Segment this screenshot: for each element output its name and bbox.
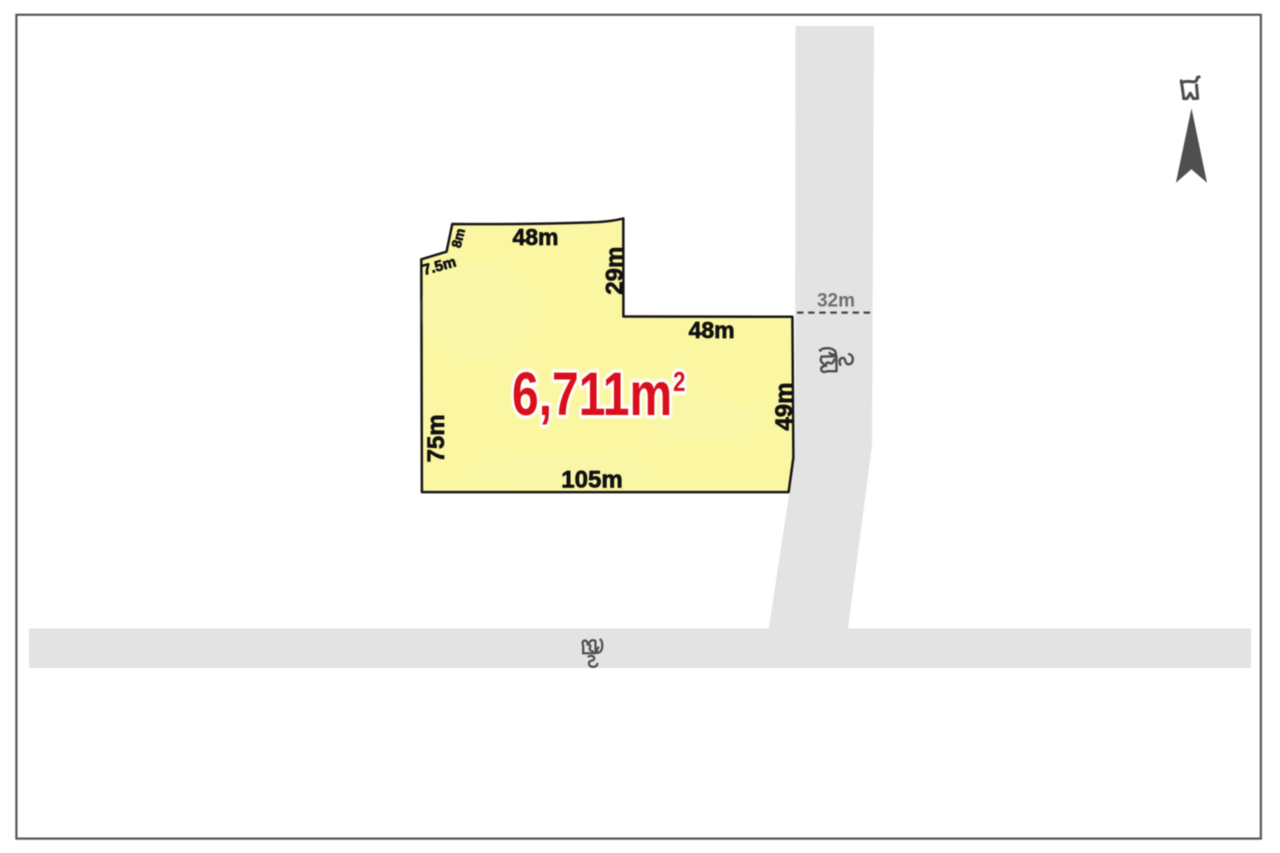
- svg-text:29m: 29m: [601, 247, 628, 295]
- svg-text:48m: 48m: [689, 317, 735, 343]
- svg-text:6,711m2: 6,711m2: [512, 359, 685, 428]
- svg-text:32m: 32m: [817, 291, 855, 312]
- svg-text:75m: 75m: [423, 414, 450, 462]
- svg-text:49m: 49m: [771, 383, 798, 431]
- svg-text:105m: 105m: [561, 466, 622, 493]
- svg-text:48m: 48m: [512, 224, 558, 250]
